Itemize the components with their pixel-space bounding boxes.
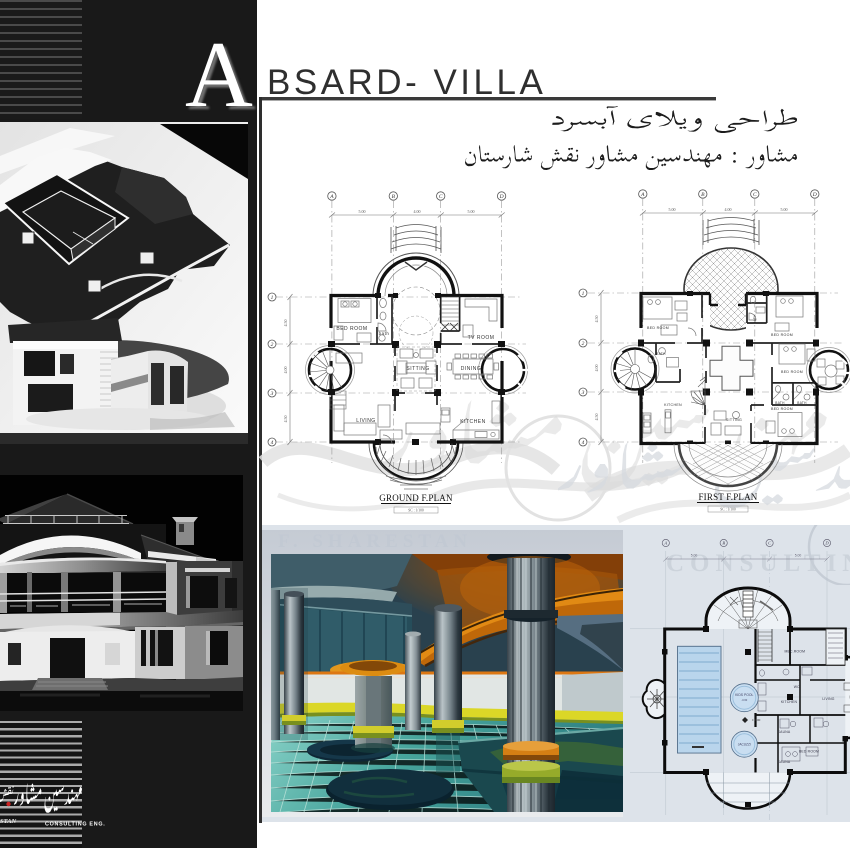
svg-text:SC : 1/100: SC : 1/100 xyxy=(408,509,424,513)
svg-text:STAN: STAN xyxy=(0,818,17,825)
svg-text:5.00: 5.00 xyxy=(468,209,475,214)
svg-text:4.00: 4.00 xyxy=(594,365,599,372)
svg-text:C: C xyxy=(439,194,443,200)
svg-text:BED ROOM: BED ROOM xyxy=(647,326,669,330)
svg-text:1: 1 xyxy=(271,295,274,301)
svg-text:C: C xyxy=(753,192,757,198)
svg-text:4: 4 xyxy=(582,439,585,446)
svg-text:KIDS POOL: KIDS POOL xyxy=(735,693,753,697)
svg-text:BED ROOM: BED ROOM xyxy=(336,326,367,332)
svg-text:2: 2 xyxy=(582,341,585,347)
svg-text:GROUND F.PLAN: GROUND F.PLAN xyxy=(379,493,453,503)
svg-text:MEC.ROOM: MEC.ROOM xyxy=(784,650,805,654)
svg-text:BATH: BATH xyxy=(656,352,666,356)
svg-text:C: C xyxy=(768,541,772,546)
svg-text:A: A xyxy=(640,192,645,198)
svg-text:4.00: 4.00 xyxy=(725,207,732,212)
svg-text:BATH: BATH xyxy=(797,401,807,405)
svg-text:TV ROOM: TV ROOM xyxy=(468,335,495,341)
svg-text:LIVING: LIVING xyxy=(822,697,834,701)
svg-text:bath: bath xyxy=(379,331,390,336)
svg-text:FIRST F.PLAN: FIRST F.PLAN xyxy=(698,492,757,502)
svg-text:SITTING: SITTING xyxy=(406,366,429,372)
svg-text:BATH: BATH xyxy=(753,314,757,324)
svg-text:3: 3 xyxy=(581,390,585,396)
svg-text:SAUNA: SAUNA xyxy=(778,730,791,734)
svg-text:KITCHEN: KITCHEN xyxy=(664,403,682,407)
svg-text:BED ROOM: BED ROOM xyxy=(781,370,803,374)
svg-text:D: D xyxy=(812,192,817,198)
svg-text:WC: WC xyxy=(794,685,800,689)
svg-text:4: 4 xyxy=(271,439,274,446)
svg-text:A: A xyxy=(329,194,334,200)
svg-text:5.00: 5.00 xyxy=(359,209,366,214)
svg-text:BED ROOM: BED ROOM xyxy=(771,407,793,411)
svg-text:4.50: 4.50 xyxy=(283,416,288,423)
svg-text:BED ROOM: BED ROOM xyxy=(799,750,819,754)
svg-text:CONSULTING ENG.: CONSULTING ENG. xyxy=(45,822,105,828)
svg-text:D: D xyxy=(499,194,504,200)
svg-text:SITTING: SITTING xyxy=(726,418,742,422)
svg-text:1: 1 xyxy=(582,291,585,297)
svg-text:5.00: 5.00 xyxy=(669,207,676,212)
svg-text:JACUZZI: JACUZZI xyxy=(738,743,751,747)
svg-text:2: 2 xyxy=(271,342,274,348)
svg-text:KITCHEN: KITCHEN xyxy=(781,700,798,704)
svg-text:5.00: 5.00 xyxy=(795,554,802,558)
svg-text:F. SHARESTAN: F. SHARESTAN xyxy=(278,531,472,552)
svg-text:4.00: 4.00 xyxy=(414,209,421,214)
svg-text:4.50: 4.50 xyxy=(594,414,599,421)
svg-text:5.00: 5.00 xyxy=(691,554,698,558)
svg-text:D: D xyxy=(824,541,829,546)
svg-text:KITCHEN: KITCHEN xyxy=(460,419,485,425)
svg-text:BED ROOM: BED ROOM xyxy=(771,333,793,337)
svg-text:SAUNA: SAUNA xyxy=(778,760,791,764)
svg-text:SC : 1/100: SC : 1/100 xyxy=(720,508,736,512)
svg-text:4.00: 4.00 xyxy=(283,367,288,374)
svg-text:± 0.00: ± 0.00 xyxy=(752,718,761,722)
svg-text:B: B xyxy=(722,541,725,546)
svg-text:4.50: 4.50 xyxy=(594,316,599,323)
svg-text:A: A xyxy=(663,541,667,546)
svg-text:BATH: BATH xyxy=(775,401,785,405)
svg-text:LIVING: LIVING xyxy=(356,418,375,424)
svg-text:3: 3 xyxy=(270,391,274,397)
svg-text:5.00: 5.00 xyxy=(781,207,788,212)
svg-text:-0.60: -0.60 xyxy=(741,698,747,702)
svg-text:4.50: 4.50 xyxy=(283,320,288,327)
svg-text:DINING: DINING xyxy=(461,366,482,372)
